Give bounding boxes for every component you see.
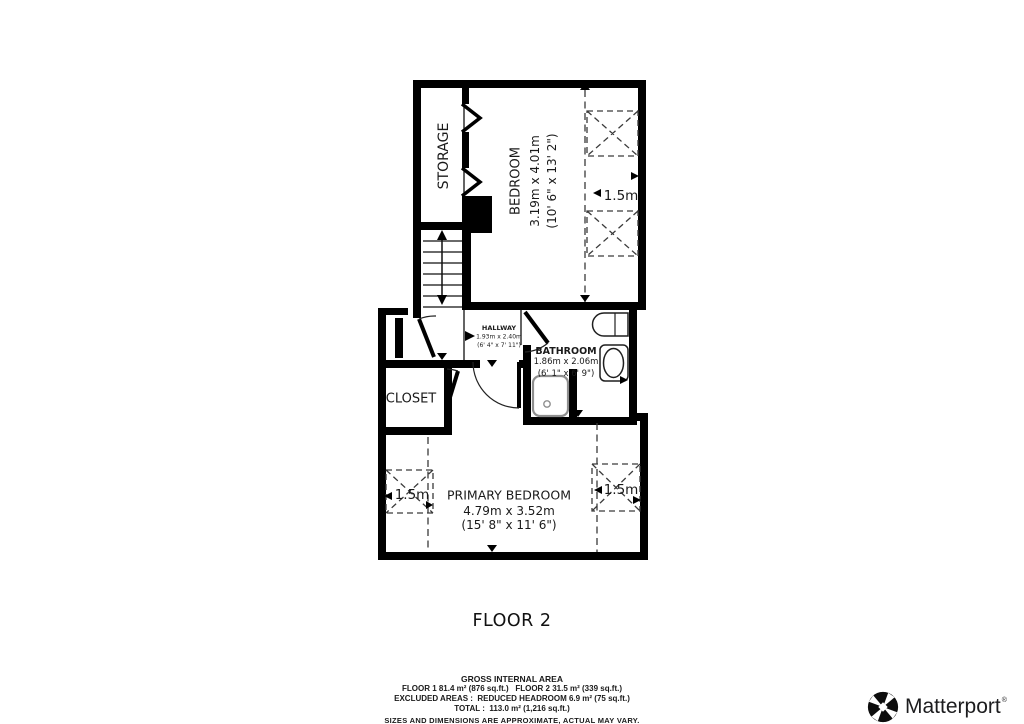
room-bathroom-label: BATHROOM 1.86m x 2.06m (6' 1" x 6' 9") (534, 346, 599, 379)
wall-bottom (378, 552, 648, 560)
primary-bedroom-dimensions-imperial: (15' 8" x 11' 6") (461, 518, 556, 532)
room-storage-label: STORAGE (436, 123, 452, 190)
floor-plan-page: STORAGE BEDROOM 3.19m x 4.01m (10' 6" x … (0, 0, 1024, 724)
wall-partition-stub-b (462, 132, 469, 168)
chimney-block (462, 196, 492, 233)
hallway-dimensions-imperial: (6' 4" x 7' 11") (477, 342, 521, 349)
wall-right-bedroom (638, 80, 646, 310)
wall-left-upper (413, 80, 421, 318)
bedroom-dimensions-metric: 3.19m x 4.01m (528, 135, 542, 227)
wall-bathroom-left (523, 345, 531, 425)
toilet-icon (593, 313, 629, 336)
sink-icon (600, 345, 628, 381)
bathroom-dimensions-imperial: (6' 1" x 6' 9") (538, 369, 595, 379)
matterport-pinwheel-icon (866, 690, 900, 724)
wall-stairs-right (462, 230, 471, 310)
bathroom-name: BATHROOM (535, 346, 596, 357)
primary-bedroom-dimensions-metric: 4.79m x 3.52m (463, 504, 555, 518)
bedroom-name: BEDROOM (509, 147, 524, 215)
primary-bedroom-name: PRIMARY BEDROOM (447, 488, 571, 503)
wall-closet-bottom (378, 427, 452, 435)
wall-bathroom-bottom (523, 417, 637, 425)
wall-bathroom-right (629, 310, 637, 421)
stairs-icon (423, 230, 462, 307)
wall-partition-stub-a (462, 88, 469, 104)
floor-title: FLOOR 2 (0, 611, 1024, 631)
registered-trademark-icon: ® (1002, 697, 1007, 704)
wall-storage-bottom (413, 222, 470, 230)
storage-name: STORAGE (436, 123, 452, 190)
door-landing (419, 316, 436, 357)
bedroom-headroom-label: 1.5m (604, 188, 639, 204)
room-closet-label: CLOSET (386, 392, 437, 407)
matterport-logo-text: Matterport (905, 695, 1001, 719)
primary-headroom-right-label: 1.5m (604, 482, 639, 498)
wall-hallway-bottom (378, 360, 480, 368)
room-bedroom-label: BEDROOM 3.19m x 4.01m (10' 6" x 13' 2") … (509, 133, 639, 228)
hallway-name: HALLWAY (482, 324, 517, 332)
matterport-logo: Matterport ® (866, 690, 1006, 724)
wall-landing-stub (395, 318, 403, 358)
primary-headroom-left-label: 1.5m (395, 487, 430, 503)
door-primary-bedroom (473, 362, 519, 408)
closet-name: CLOSET (386, 392, 437, 407)
wall-right-lower (640, 413, 648, 560)
area-summary-heading: GROSS INTERNAL AREA (0, 674, 1024, 684)
bathroom-dimensions-metric: 1.86m x 2.06m (534, 357, 599, 367)
wall-top (413, 80, 646, 88)
bedroom-dimensions-imperial: (10' 6" x 13' 2") (545, 133, 559, 228)
hallway-dimensions-metric: 1.93m x 2.40m (476, 334, 522, 341)
shower-icon (533, 376, 568, 416)
room-hallway-label: HALLWAY 1.93m x 2.40m (6' 4" x 7' 11") (476, 324, 522, 349)
